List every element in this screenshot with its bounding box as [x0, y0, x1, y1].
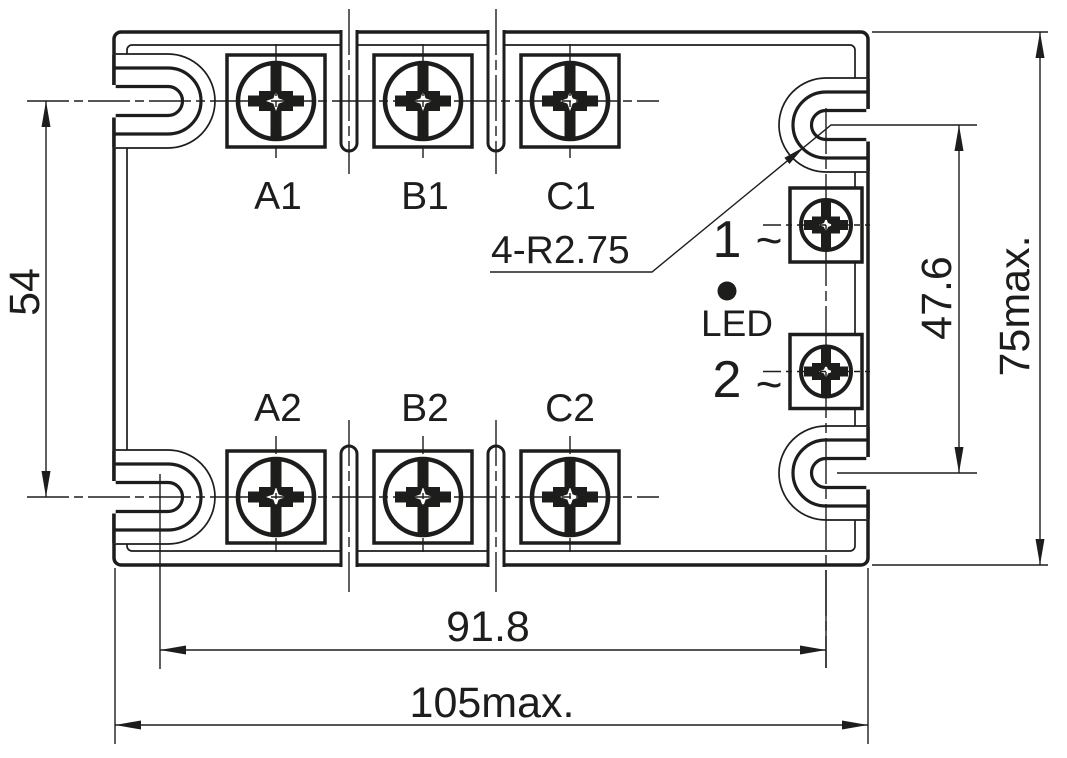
schematic-canvas: A1 B1 C1 A2 B2 C2 1 ~ 2 ~ LED 4-R2.75 54… [0, 0, 1067, 758]
ac-sign-2: ~ [756, 358, 783, 410]
terminal-label-a1: A1 [254, 175, 302, 218]
led-indicator-dot [718, 282, 737, 301]
dimension-terminal-row-spacing: 54 [1, 101, 51, 497]
terminal-label-b1: B1 [401, 175, 449, 218]
radius-note: 4-R2.75 [491, 229, 630, 272]
terminal-label-c2: C2 [545, 387, 595, 430]
dim-label-91-8: 91.8 [446, 603, 530, 651]
terminal-label-c1: C1 [546, 175, 596, 218]
control-terminal-label-2: 2 [713, 351, 742, 409]
terminal-label-b2: B2 [401, 387, 449, 430]
control-terminal-label-1: 1 [713, 211, 742, 269]
dim-label-75max: 75max. [991, 235, 1039, 376]
dim-label-47-6: 47.6 [913, 256, 961, 340]
terminal-label-a2: A2 [254, 387, 302, 430]
dim-label-105max: 105max. [410, 679, 575, 727]
led-label: LED [701, 303, 773, 344]
dim-label-54: 54 [1, 268, 49, 316]
dimension-overall-width: 105max. [115, 568, 868, 744]
ac-sign-1: ~ [756, 214, 783, 266]
ssr-dimension-drawing: A1 B1 C1 A2 B2 C2 1 ~ 2 ~ LED 4-R2.75 54… [0, 0, 1067, 758]
